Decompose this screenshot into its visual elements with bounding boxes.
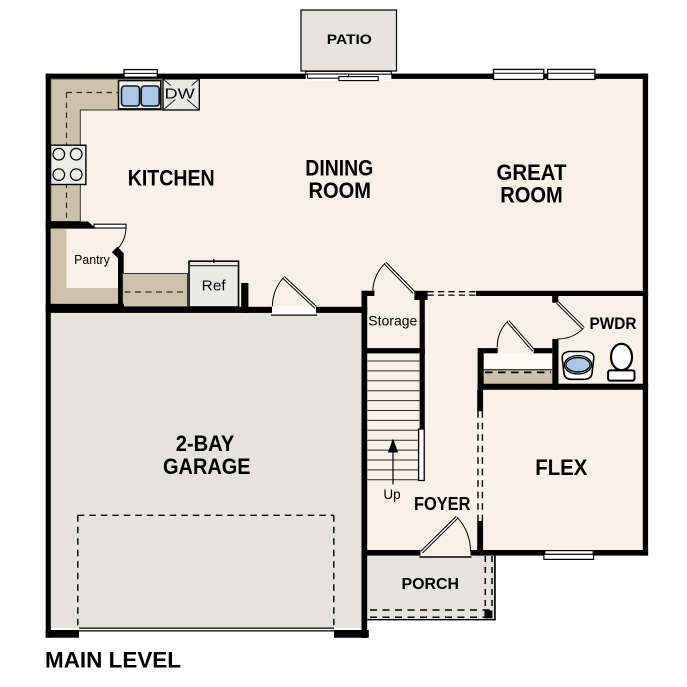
svg-text:GARAGE: GARAGE [163,454,251,479]
svg-text:Ref: Ref [202,278,227,295]
svg-text:DINING: DINING [305,155,373,180]
svg-text:Up: Up [383,486,400,502]
svg-text:PWDR: PWDR [590,314,637,333]
svg-text:ROOM: ROOM [309,178,372,203]
svg-text:PATIO: PATIO [327,31,372,47]
svg-text:MAIN LEVEL: MAIN LEVEL [45,648,181,673]
svg-text:FOYER: FOYER [414,494,471,514]
svg-text:KITCHEN: KITCHEN [128,166,215,191]
svg-text:ROOM: ROOM [500,182,563,207]
svg-text:PORCH: PORCH [402,576,460,593]
svg-text:FLEX: FLEX [535,455,587,480]
svg-text:DW: DW [165,85,196,102]
svg-text:2-BAY: 2-BAY [176,431,235,456]
svg-text:Pantry: Pantry [74,252,110,267]
svg-text:Storage: Storage [368,313,417,329]
svg-text:GREAT: GREAT [497,160,568,185]
